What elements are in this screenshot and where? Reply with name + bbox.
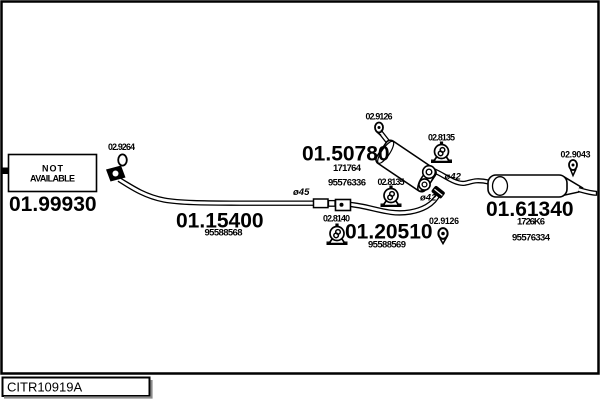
- label-clamp-tail: 02.9043: [561, 150, 591, 160]
- label-hanger-middle-right: 02.8135: [428, 133, 455, 143]
- oe-ref-rear-silencer-2: 95576334: [512, 233, 551, 244]
- flange-coupler-icon: [336, 200, 351, 211]
- not-available-line2: AVAILABLE: [30, 174, 75, 184]
- drawing-code: CITR10919A: [7, 380, 82, 395]
- label-clamp-middle-inlet: 02.9126: [366, 112, 393, 122]
- label-hanger-middle-left: 02.8135: [378, 177, 405, 187]
- not-available-box: NOT AVAILABLE: [2, 155, 97, 192]
- label-clamp-middle-outlet: 02.9126: [429, 216, 459, 226]
- oe-ref-middle-silencer-2: 95576336: [328, 178, 366, 189]
- oe-ref-rear-silencer-1: 1726K6: [517, 217, 545, 228]
- exhaust-diagram: NOT AVAILABLE 01.99930 01.15400 01.50780…: [0, 0, 600, 400]
- oe-ref-connector-pipe: 95588569: [368, 240, 406, 251]
- label-diameter-45: ø45: [293, 187, 310, 198]
- oe-ref-middle-silencer-1: 171764: [333, 163, 362, 174]
- pipe-stub: [329, 201, 336, 207]
- drawing-code-box: CITR10919A: [3, 378, 152, 398]
- pipe-bell-end: [314, 199, 329, 208]
- label-clamp-front: 02.9264: [108, 142, 135, 152]
- label-hanger-connector: 02.8140: [323, 214, 350, 224]
- part-number-front-pipe[interactable]: 01.99930: [9, 193, 97, 216]
- label-diameter-42-outlet: ø42: [445, 172, 462, 183]
- exhaust-diagram-page: NOT AVAILABLE 01.99930 01.15400 01.50780…: [0, 0, 600, 400]
- oe-ref-center-pipe: 95588568: [205, 228, 243, 239]
- not-available-line1: NOT: [42, 164, 64, 174]
- label-diameter-42-inlet: ø42: [420, 193, 437, 204]
